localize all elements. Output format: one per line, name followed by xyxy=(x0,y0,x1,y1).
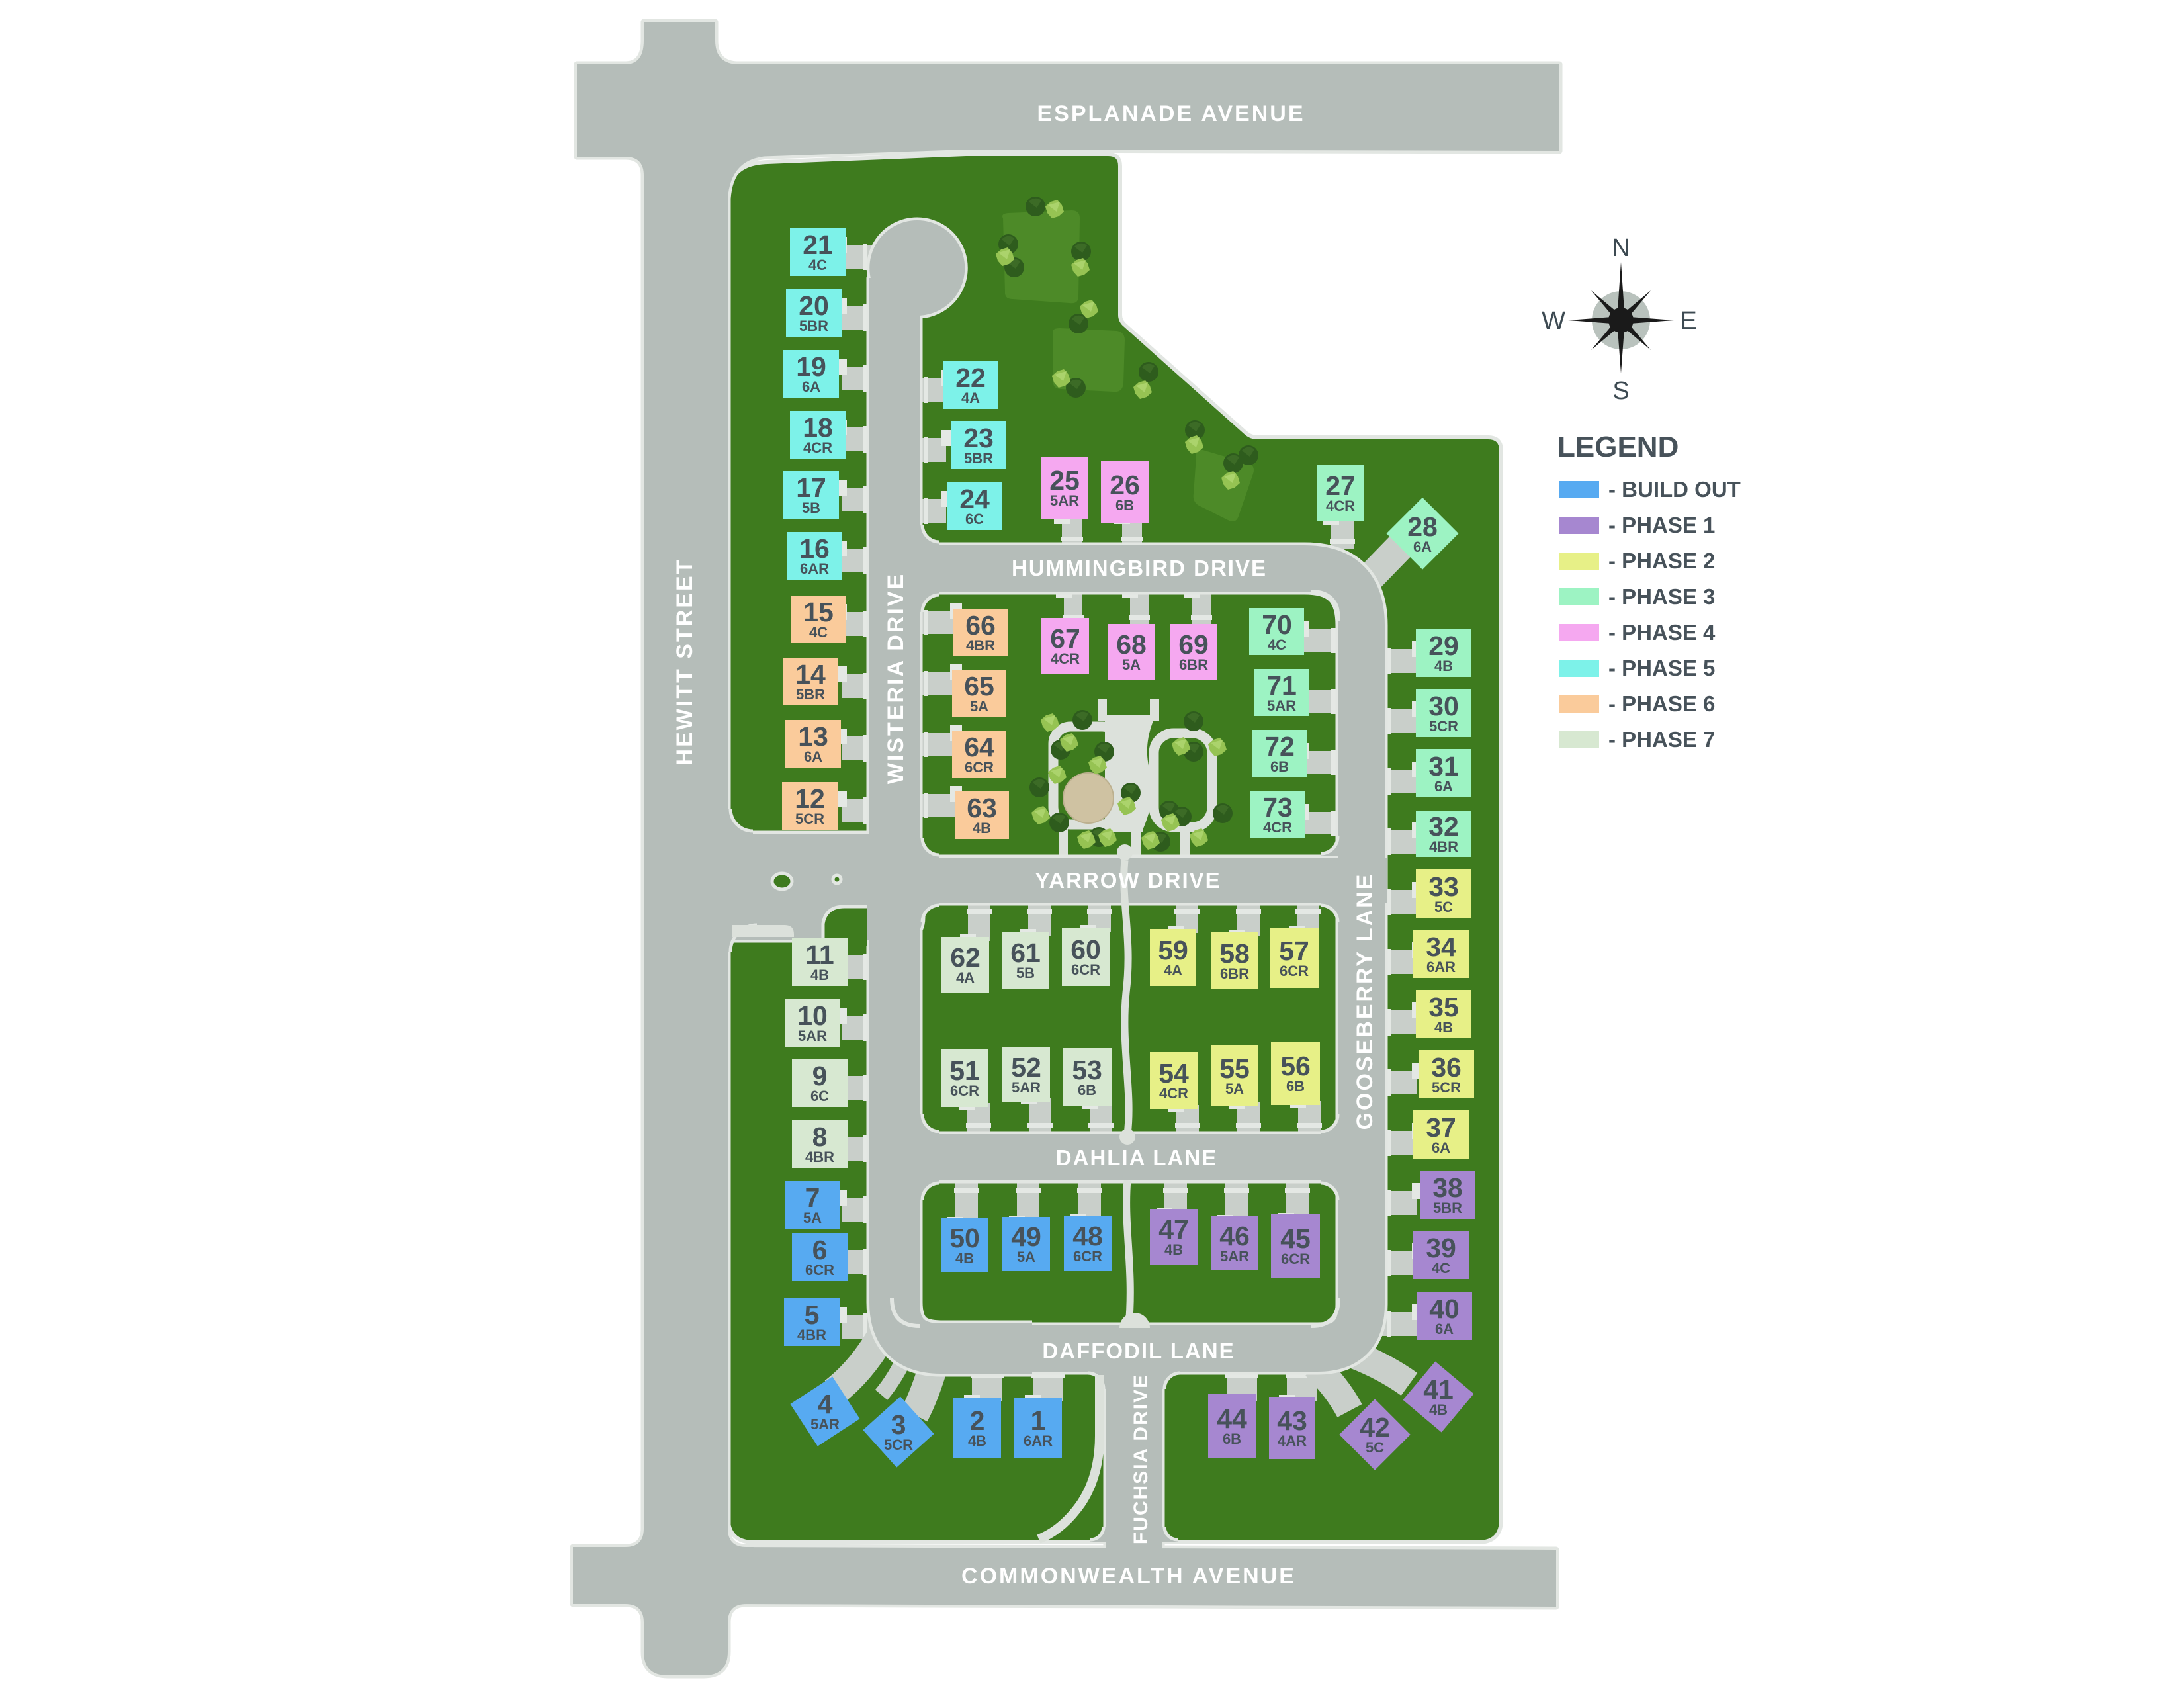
svg-text:68: 68 xyxy=(1116,629,1147,660)
svg-text:65: 65 xyxy=(964,671,994,701)
svg-text:6B: 6B xyxy=(1223,1431,1241,1447)
svg-text:6CR: 6CR xyxy=(1280,963,1309,979)
svg-text:- PHASE 3: - PHASE 3 xyxy=(1608,584,1715,609)
svg-text:4B: 4B xyxy=(973,820,991,836)
svg-text:5AR: 5AR xyxy=(1012,1079,1041,1096)
svg-text:4B: 4B xyxy=(1429,1401,1448,1418)
svg-text:58: 58 xyxy=(1219,938,1250,969)
svg-text:18: 18 xyxy=(803,412,833,443)
svg-text:6: 6 xyxy=(812,1235,828,1265)
svg-text:1: 1 xyxy=(1031,1405,1046,1436)
svg-text:70: 70 xyxy=(1262,609,1292,640)
svg-text:4BR: 4BR xyxy=(1429,838,1458,855)
svg-text:6CR: 6CR xyxy=(1073,1248,1102,1265)
svg-text:30: 30 xyxy=(1428,691,1459,721)
svg-text:16: 16 xyxy=(799,533,830,564)
svg-text:WISTERIA DRIVE: WISTERIA DRIVE xyxy=(883,572,908,784)
svg-text:4BR: 4BR xyxy=(797,1327,826,1343)
svg-text:24: 24 xyxy=(959,484,990,514)
svg-text:5CR: 5CR xyxy=(1432,1079,1461,1096)
svg-text:4CR: 4CR xyxy=(803,439,832,456)
svg-text:26: 26 xyxy=(1110,470,1140,500)
svg-text:6B: 6B xyxy=(1286,1078,1305,1094)
svg-text:6B: 6B xyxy=(1115,497,1134,513)
svg-text:5B: 5B xyxy=(1016,965,1035,981)
svg-text:5BR: 5BR xyxy=(796,686,825,703)
svg-text:W: W xyxy=(1542,307,1565,335)
svg-text:4CR: 4CR xyxy=(1263,819,1292,836)
svg-text:55: 55 xyxy=(1219,1053,1250,1084)
svg-text:5CR: 5CR xyxy=(884,1437,913,1453)
svg-text:25: 25 xyxy=(1049,465,1080,496)
svg-text:2: 2 xyxy=(970,1405,985,1436)
svg-text:73: 73 xyxy=(1262,792,1293,822)
svg-text:4BR: 4BR xyxy=(966,637,995,654)
svg-text:6A: 6A xyxy=(1413,539,1432,555)
svg-text:LEGEND: LEGEND xyxy=(1557,431,1679,463)
svg-text:4A: 4A xyxy=(961,390,980,406)
svg-text:4C: 4C xyxy=(809,624,828,641)
svg-text:69: 69 xyxy=(1178,629,1209,660)
svg-text:33: 33 xyxy=(1428,871,1459,902)
svg-text:13: 13 xyxy=(798,721,828,752)
svg-text:- PHASE 6: - PHASE 6 xyxy=(1608,691,1715,716)
svg-text:36: 36 xyxy=(1431,1052,1462,1083)
svg-text:5AR: 5AR xyxy=(1050,492,1079,509)
svg-text:12: 12 xyxy=(795,783,825,814)
svg-text:5B: 5B xyxy=(802,500,820,516)
svg-text:4B: 4B xyxy=(968,1433,986,1449)
svg-text:5C: 5C xyxy=(1366,1439,1384,1456)
svg-text:32: 32 xyxy=(1428,811,1459,842)
svg-text:- PHASE 2: - PHASE 2 xyxy=(1608,549,1715,573)
svg-text:5A: 5A xyxy=(1122,656,1141,673)
svg-text:DAHLIA LANE: DAHLIA LANE xyxy=(1056,1145,1217,1170)
svg-text:5CR: 5CR xyxy=(795,811,824,827)
svg-text:6AR: 6AR xyxy=(800,560,829,577)
svg-text:4A: 4A xyxy=(1164,962,1182,979)
svg-text:72: 72 xyxy=(1264,731,1295,762)
svg-text:5A: 5A xyxy=(803,1210,822,1226)
svg-text:21: 21 xyxy=(803,230,833,260)
svg-text:50: 50 xyxy=(949,1223,980,1253)
svg-text:6C: 6C xyxy=(965,511,984,527)
svg-text:15: 15 xyxy=(803,597,834,627)
svg-text:38: 38 xyxy=(1432,1173,1463,1203)
svg-text:43: 43 xyxy=(1277,1405,1307,1436)
svg-text:5AR: 5AR xyxy=(810,1416,840,1433)
svg-text:6A: 6A xyxy=(1434,778,1453,795)
svg-text:35: 35 xyxy=(1428,992,1459,1022)
svg-text:4CR: 4CR xyxy=(1051,650,1080,667)
svg-text:N: N xyxy=(1612,234,1630,262)
svg-text:COMMONWEALTH AVENUE: COMMONWEALTH AVENUE xyxy=(961,1564,1296,1589)
svg-text:6CR: 6CR xyxy=(1281,1251,1310,1267)
svg-text:4AR: 4AR xyxy=(1278,1433,1307,1449)
svg-text:5AR: 5AR xyxy=(1220,1248,1249,1265)
svg-text:4CR: 4CR xyxy=(1159,1085,1188,1102)
svg-text:S: S xyxy=(1612,377,1629,405)
svg-text:5AR: 5AR xyxy=(1267,697,1296,714)
svg-text:- PHASE 5: - PHASE 5 xyxy=(1608,656,1715,680)
svg-text:GOOSEBERRY LANE: GOOSEBERRY LANE xyxy=(1352,873,1377,1130)
svg-text:51: 51 xyxy=(949,1055,980,1086)
svg-text:57: 57 xyxy=(1279,936,1309,966)
svg-text:4BR: 4BR xyxy=(805,1149,834,1165)
svg-text:5A: 5A xyxy=(1017,1249,1035,1265)
svg-text:45: 45 xyxy=(1280,1223,1311,1254)
svg-text:4C: 4C xyxy=(1268,637,1286,653)
svg-text:19: 19 xyxy=(796,351,826,382)
svg-text:63: 63 xyxy=(967,793,997,823)
svg-text:4B: 4B xyxy=(1434,658,1453,674)
svg-text:49: 49 xyxy=(1011,1222,1041,1252)
svg-text:6CR: 6CR xyxy=(965,759,994,776)
svg-text:4B: 4B xyxy=(955,1250,974,1266)
svg-text:64: 64 xyxy=(964,732,994,762)
svg-text:8: 8 xyxy=(812,1122,828,1152)
svg-text:HEWITT STREET: HEWITT STREET xyxy=(672,558,697,766)
svg-text:5CR: 5CR xyxy=(1429,718,1458,734)
svg-text:4B: 4B xyxy=(1164,1241,1183,1258)
svg-text:5C: 5C xyxy=(1434,899,1453,915)
svg-text:3: 3 xyxy=(891,1409,906,1440)
svg-text:6CR: 6CR xyxy=(805,1262,834,1278)
svg-text:54: 54 xyxy=(1158,1058,1189,1088)
svg-text:6A: 6A xyxy=(804,748,822,765)
svg-text:37: 37 xyxy=(1426,1112,1456,1143)
svg-text:4CR: 4CR xyxy=(1326,498,1355,514)
svg-text:4C: 4C xyxy=(1432,1260,1450,1276)
svg-text:66: 66 xyxy=(965,610,996,641)
svg-text:5BR: 5BR xyxy=(964,450,993,466)
svg-text:DAFFODIL LANE: DAFFODIL LANE xyxy=(1042,1339,1235,1363)
svg-text:5A: 5A xyxy=(1225,1081,1244,1097)
svg-text:22: 22 xyxy=(955,363,986,393)
svg-text:28: 28 xyxy=(1407,511,1438,542)
svg-text:17: 17 xyxy=(796,472,826,503)
svg-text:40: 40 xyxy=(1429,1294,1460,1324)
svg-text:52: 52 xyxy=(1011,1052,1041,1083)
svg-text:6B: 6B xyxy=(1078,1082,1096,1098)
svg-text:67: 67 xyxy=(1050,623,1080,654)
svg-text:5: 5 xyxy=(805,1300,820,1330)
svg-text:48: 48 xyxy=(1072,1221,1103,1251)
svg-text:61: 61 xyxy=(1010,938,1041,968)
svg-text:5A: 5A xyxy=(970,698,988,715)
svg-text:6A: 6A xyxy=(1435,1321,1454,1337)
svg-text:10: 10 xyxy=(797,1000,828,1031)
svg-text:5AR: 5AR xyxy=(798,1028,827,1044)
svg-text:6AR: 6AR xyxy=(1426,959,1456,975)
svg-text:4A: 4A xyxy=(956,969,975,986)
svg-text:7: 7 xyxy=(805,1182,820,1213)
svg-text:FUCHSIA DRIVE: FUCHSIA DRIVE xyxy=(1130,1374,1152,1544)
svg-text:56: 56 xyxy=(1280,1051,1311,1081)
svg-text:6CR: 6CR xyxy=(1071,961,1100,978)
svg-text:59: 59 xyxy=(1158,935,1188,965)
svg-text:ESPLANADE AVENUE: ESPLANADE AVENUE xyxy=(1037,101,1305,126)
svg-text:4B: 4B xyxy=(1434,1019,1453,1036)
svg-text:4C: 4C xyxy=(808,257,827,273)
svg-text:34: 34 xyxy=(1426,932,1456,962)
svg-text:YARROW DRIVE: YARROW DRIVE xyxy=(1035,868,1221,893)
svg-text:14: 14 xyxy=(795,659,826,689)
svg-text:E: E xyxy=(1680,307,1696,335)
svg-text:11: 11 xyxy=(805,940,834,970)
svg-text:4: 4 xyxy=(818,1389,833,1419)
svg-text:6A: 6A xyxy=(802,378,820,395)
svg-text:44: 44 xyxy=(1217,1403,1247,1434)
svg-text:46: 46 xyxy=(1219,1221,1250,1251)
svg-text:5BR: 5BR xyxy=(1433,1200,1462,1216)
svg-text:39: 39 xyxy=(1426,1233,1456,1263)
svg-text:42: 42 xyxy=(1360,1412,1390,1443)
svg-text:62: 62 xyxy=(950,942,981,973)
svg-text:- BUILD OUT: - BUILD OUT xyxy=(1608,477,1741,502)
svg-text:60: 60 xyxy=(1070,934,1101,965)
svg-text:- PHASE 4: - PHASE 4 xyxy=(1608,620,1716,644)
svg-text:6A: 6A xyxy=(1432,1139,1450,1156)
svg-text:- PHASE 1: - PHASE 1 xyxy=(1608,513,1715,537)
svg-text:6C: 6C xyxy=(810,1088,829,1104)
svg-text:HUMMINGBIRD DRIVE: HUMMINGBIRD DRIVE xyxy=(1012,556,1267,580)
svg-text:29: 29 xyxy=(1428,631,1459,661)
svg-text:31: 31 xyxy=(1428,751,1459,781)
svg-text:6BR: 6BR xyxy=(1220,965,1249,982)
svg-text:47: 47 xyxy=(1158,1214,1189,1245)
svg-text:27: 27 xyxy=(1325,470,1356,501)
svg-text:20: 20 xyxy=(799,290,829,321)
svg-text:- PHASE 7: - PHASE 7 xyxy=(1608,727,1715,752)
svg-text:6AR: 6AR xyxy=(1024,1433,1053,1449)
svg-text:5BR: 5BR xyxy=(799,318,828,334)
svg-text:6B: 6B xyxy=(1270,758,1289,775)
svg-text:41: 41 xyxy=(1423,1374,1454,1405)
svg-text:4B: 4B xyxy=(810,967,829,983)
svg-text:9: 9 xyxy=(812,1061,828,1091)
svg-text:6CR: 6CR xyxy=(950,1083,979,1099)
svg-text:53: 53 xyxy=(1072,1055,1102,1085)
svg-text:23: 23 xyxy=(963,423,994,453)
svg-text:6BR: 6BR xyxy=(1179,656,1208,673)
svg-text:71: 71 xyxy=(1266,670,1297,701)
